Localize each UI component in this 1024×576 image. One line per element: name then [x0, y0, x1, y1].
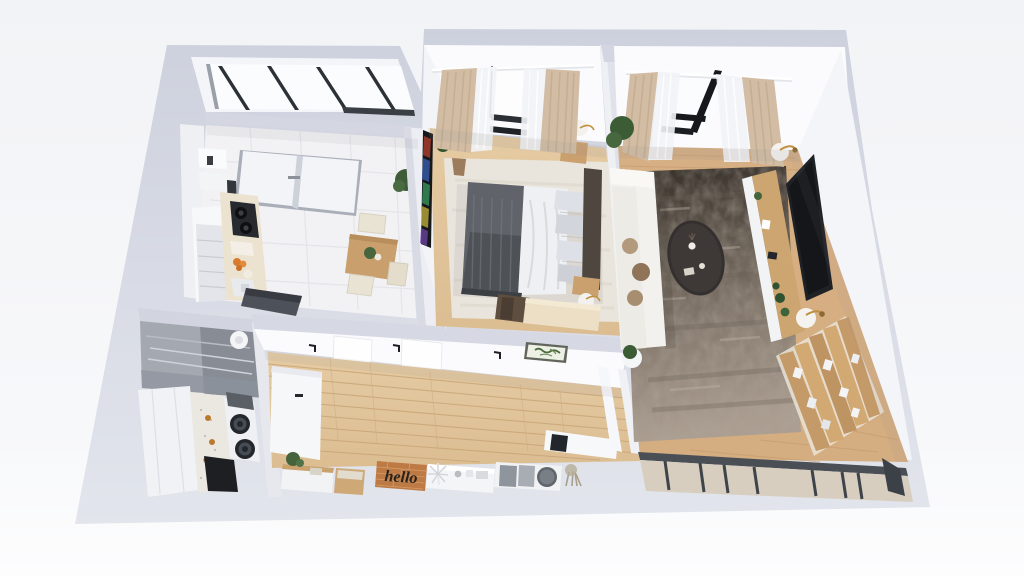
svg-text:hello: hello — [384, 468, 418, 487]
